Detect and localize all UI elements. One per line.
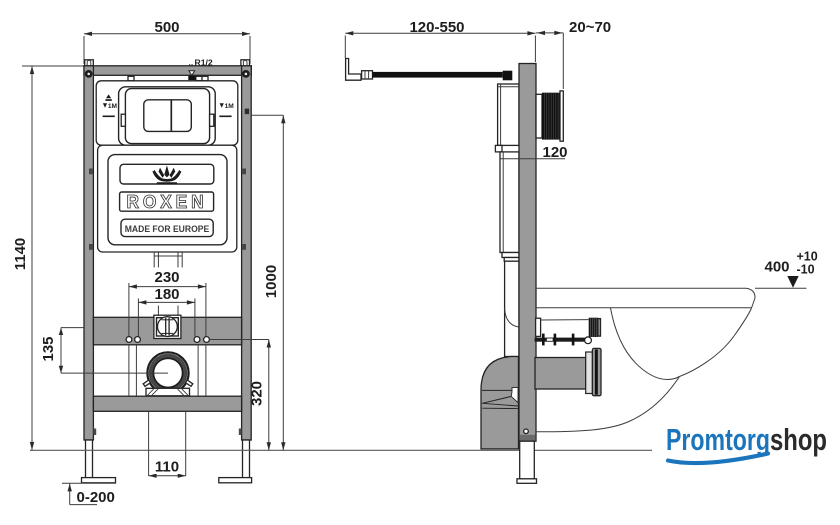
svg-text:20~70: 20~70 — [569, 19, 611, 36]
svg-text:1M: 1M — [108, 103, 118, 110]
svg-text:1000: 1000 — [263, 265, 280, 298]
svg-text:-10: -10 — [797, 263, 815, 277]
svg-text:MADE FOR EUROPE: MADE FOR EUROPE — [125, 224, 210, 235]
svg-text:R1/2: R1/2 — [195, 58, 213, 68]
svg-text:1M: 1M — [225, 103, 235, 110]
svg-text:1140: 1140 — [12, 238, 29, 271]
svg-text:Promtorg: Promtorg — [666, 422, 770, 457]
svg-text:0-200: 0-200 — [77, 489, 115, 506]
svg-text:..: .. — [189, 58, 194, 68]
svg-text:320: 320 — [249, 381, 266, 406]
svg-text:+10: +10 — [797, 250, 818, 264]
svg-text:400: 400 — [765, 259, 790, 276]
svg-text:230: 230 — [154, 269, 179, 286]
svg-text:180: 180 — [154, 286, 179, 303]
svg-text:135: 135 — [40, 336, 57, 361]
svg-text:110: 110 — [155, 459, 179, 476]
svg-text:ROXEN: ROXEN — [127, 192, 208, 212]
svg-text:shop: shop — [770, 422, 827, 457]
